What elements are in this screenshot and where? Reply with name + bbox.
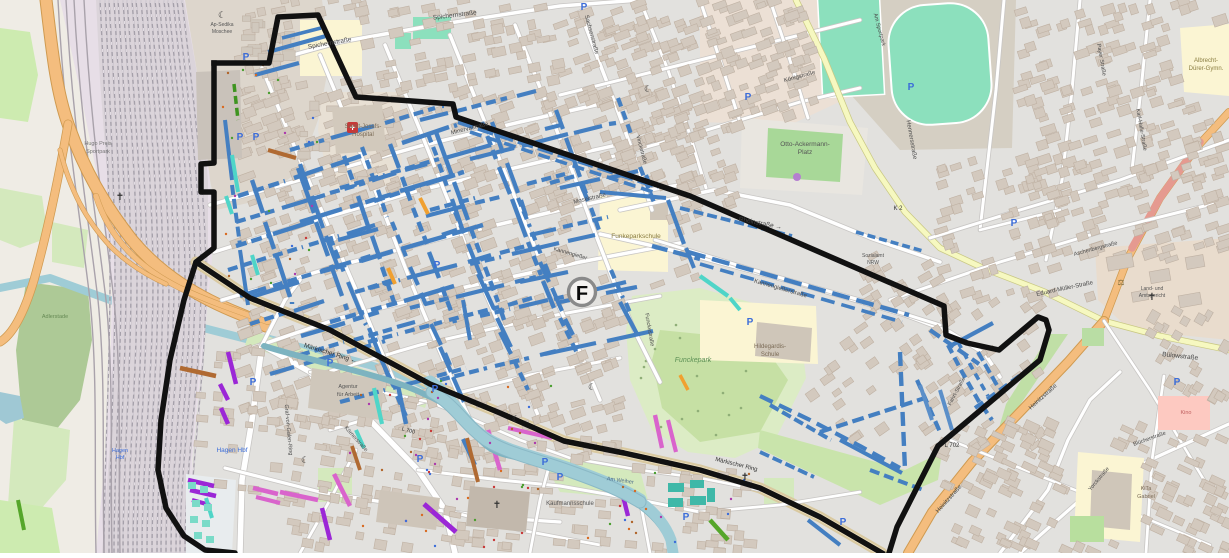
svg-text:P: P [1174,377,1181,388]
svg-text:K 2: K 2 [893,206,903,212]
svg-text:P: P [557,472,564,483]
svg-text:Otto-Ackermann-: Otto-Ackermann- [780,141,830,148]
svg-text:☾: ☾ [588,382,596,392]
svg-text:P: P [747,317,754,328]
svg-text:Sportpark: Sportpark [86,149,110,155]
svg-text:Hbf: Hbf [116,455,125,461]
svg-text:P: P [908,82,915,93]
svg-text:Ap-Sedika: Ap-Sedika [210,22,233,28]
svg-text:Funckepark: Funckepark [675,357,712,364]
svg-text:P: P [434,260,441,271]
svg-text:Hospital: Hospital [352,132,374,138]
svg-text:✝: ✝ [116,192,124,203]
svg-text:☾: ☾ [301,455,309,465]
svg-text:P: P [327,358,334,369]
svg-text:☾: ☾ [644,84,652,94]
svg-text:P: P [253,132,260,143]
svg-text:Dürer-Gymn.: Dürer-Gymn. [1189,66,1224,72]
svg-text:Platz: Platz [798,149,812,156]
svg-text:P: P [250,377,257,388]
svg-text:Sankt-Josefs-: Sankt-Josefs- [345,124,382,130]
svg-text:Schule: Schule [761,352,780,358]
svg-text:Hagen: Hagen [112,448,128,454]
svg-text:⚖: ⚖ [1117,278,1124,287]
svg-text:Funkeparkschule: Funkeparkschule [611,233,661,240]
svg-text:NRW: NRW [867,260,879,266]
svg-text:Sozialamt: Sozialamt [862,253,885,259]
svg-text:P: P [243,52,250,63]
svg-text:Hagen Hbf: Hagen Hbf [216,447,247,454]
svg-text:Adlerstade: Adlerstade [42,314,68,320]
svg-text:F: F [576,283,588,305]
svg-text:☾: ☾ [218,10,226,20]
svg-text:P: P [1011,218,1018,229]
svg-text:L 702: L 702 [945,443,960,449]
svg-text:P: P [581,2,588,13]
svg-text:für Arbeit: für Arbeit [337,392,359,398]
svg-text:P: P [745,92,752,103]
svg-text:P: P [683,512,690,523]
svg-text:Gabriel: Gabriel [1137,494,1155,500]
svg-text:Moschee: Moschee [212,29,233,35]
svg-text:P: P [237,132,244,143]
svg-text:P: P [840,517,847,528]
svg-text:KiTa: KiTa [1141,486,1153,492]
svg-text:P: P [417,454,424,465]
svg-text:Hildegardis-: Hildegardis- [754,344,786,350]
svg-text:P: P [432,384,439,395]
svg-text:✝: ✝ [493,500,501,511]
svg-text:P: P [542,457,549,468]
svg-text:Kino: Kino [1180,410,1191,416]
svg-text:Hugo Preis: Hugo Preis [84,141,111,147]
svg-text:☾: ☾ [512,414,520,424]
svg-text:Albrecht-: Albrecht- [1194,58,1218,64]
svg-text:Agentur: Agentur [338,384,357,390]
svg-text:✝: ✝ [741,472,749,483]
svg-text:Kaufmannsschule: Kaufmannsschule [546,501,594,507]
svg-text:✝: ✝ [1148,292,1156,303]
